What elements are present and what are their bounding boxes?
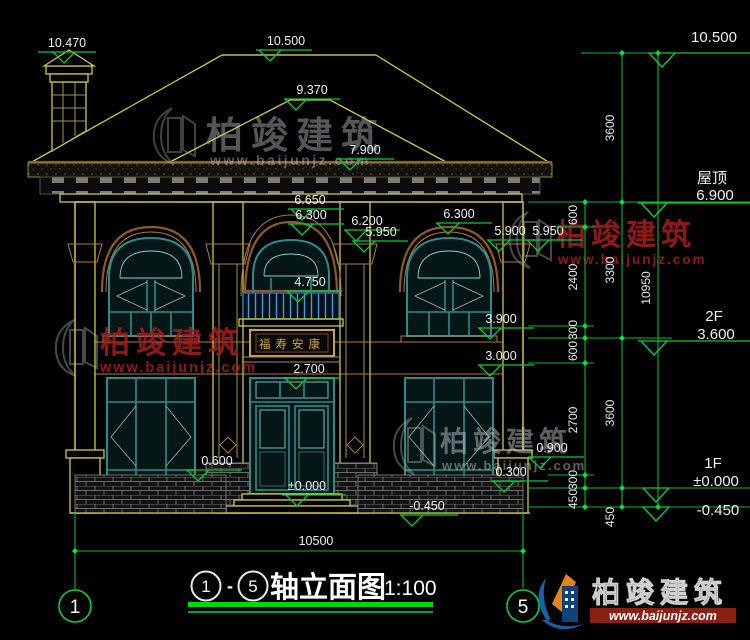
svg-text:1: 1 <box>70 597 81 618</box>
svg-text:屋顶: 屋顶 <box>697 170 727 187</box>
svg-text:10.500: 10.500 <box>267 34 305 48</box>
svg-text:-0.450: -0.450 <box>409 499 444 513</box>
window-2f-center <box>241 215 341 296</box>
svg-text:10.500: 10.500 <box>691 29 737 46</box>
window-2f-right <box>400 227 498 342</box>
cad-elevation-drawing: 福寿安康 <box>0 0 750 640</box>
elevation-marker: 3.900 <box>478 312 534 339</box>
svg-text:600: 600 <box>566 341 580 361</box>
svg-text:2700: 2700 <box>566 406 580 433</box>
brand-logo: 柏竣建筑 www.baijunjz.com <box>538 574 736 629</box>
svg-text:2.700: 2.700 <box>293 362 324 376</box>
plaque-text: 福寿安康 <box>259 337 325 351</box>
entrance-steps <box>226 494 358 513</box>
drawing-canvas: 福寿安康 <box>0 0 750 640</box>
svg-text:±0.000: ±0.000 <box>693 473 739 490</box>
svg-text:10.470: 10.470 <box>48 36 86 50</box>
svg-text:6.650: 6.650 <box>294 193 325 207</box>
svg-text:0.300: 0.300 <box>495 465 526 479</box>
balcony <box>239 291 343 326</box>
level-marker-2f: 2F 3.600 <box>638 308 750 355</box>
svg-text:4.750: 4.750 <box>294 275 325 289</box>
watermark-url: www.baijunjz.com <box>99 360 257 376</box>
window-2f-left <box>102 227 200 342</box>
level-marker-1f: 1F ±0.000 <box>643 455 739 502</box>
svg-text:10950: 10950 <box>639 271 653 305</box>
svg-text:0.900: 0.900 <box>536 441 567 455</box>
entrance-door <box>250 378 334 494</box>
svg-text:3600: 3600 <box>603 399 617 426</box>
watermark-text: 柏竣建筑 <box>100 326 244 360</box>
svg-text:2400: 2400 <box>566 263 580 290</box>
elevation-marker: 3.000 <box>478 349 534 376</box>
svg-text:450: 450 <box>566 489 580 509</box>
svg-text:300: 300 <box>566 320 580 340</box>
right-level-labels: 10.500 屋顶 6.900 2F 3.600 1F ±0.000 -0.45… <box>638 29 750 521</box>
svg-text:5.950: 5.950 <box>365 225 396 239</box>
window-1f-left <box>107 378 195 487</box>
elevation-marker: 5.950 <box>352 225 408 252</box>
svg-text:5: 5 <box>518 597 529 618</box>
svg-text:300: 300 <box>566 470 580 490</box>
axis-bubble-left: 1 <box>59 590 91 622</box>
title-text: 轴立面图 <box>270 570 386 604</box>
svg-text:3.000: 3.000 <box>485 349 516 363</box>
level-marker-top: 10.500 <box>648 29 750 67</box>
svg-text:0.600: 0.600 <box>201 454 232 468</box>
svg-text:1F: 1F <box>704 455 722 472</box>
title-underline-thin <box>188 611 433 613</box>
chimney <box>44 50 94 151</box>
name-plaque: 福寿安康 <box>243 330 340 362</box>
drawing-title: 1 - 5 轴立面图 1:100 <box>188 570 437 613</box>
svg-text:7.900: 7.900 <box>349 143 380 157</box>
title-underline-thick <box>188 602 433 607</box>
cornice <box>28 162 552 202</box>
svg-text:3600: 3600 <box>603 114 617 141</box>
svg-text:5.900: 5.900 <box>494 224 525 238</box>
svg-text:-0.450: -0.450 <box>697 502 740 519</box>
svg-text:3300: 3300 <box>603 256 617 283</box>
svg-text:450: 450 <box>603 507 617 527</box>
svg-text:5.950: 5.950 <box>532 224 563 238</box>
svg-text:6.900: 6.900 <box>696 187 734 204</box>
title-separator: - <box>227 576 233 596</box>
title-scale: 1:100 <box>384 577 437 600</box>
svg-text:6.300: 6.300 <box>443 207 474 221</box>
brand-site: www.baijunjz.com <box>609 609 717 623</box>
svg-text:2F: 2F <box>705 308 723 325</box>
svg-text:10500: 10500 <box>299 534 334 548</box>
title-axis-start: 1 <box>201 577 210 596</box>
elevation-marker: 10.500 <box>256 34 312 61</box>
level-marker-roof: 屋顶 6.900 <box>638 170 750 217</box>
brand-name: 柏竣建筑 <box>592 576 728 608</box>
svg-text:6.300: 6.300 <box>295 208 326 222</box>
watermark-url: www.baijunjz.com <box>209 152 371 168</box>
axis-bubble-right: 5 <box>507 590 539 622</box>
svg-text:3.900: 3.900 <box>485 312 516 326</box>
title-axis-end: 5 <box>248 577 257 596</box>
elevation-marker: 9.370 <box>284 83 340 110</box>
svg-text:600: 600 <box>566 205 580 225</box>
brand-logo-icon <box>538 574 584 629</box>
svg-text:9.370: 9.370 <box>296 83 327 97</box>
watermark-left: 柏竣建筑 www.baijunjz.com <box>56 320 257 376</box>
svg-text:±0.000: ±0.000 <box>288 479 326 493</box>
svg-text:3.600: 3.600 <box>697 326 735 343</box>
